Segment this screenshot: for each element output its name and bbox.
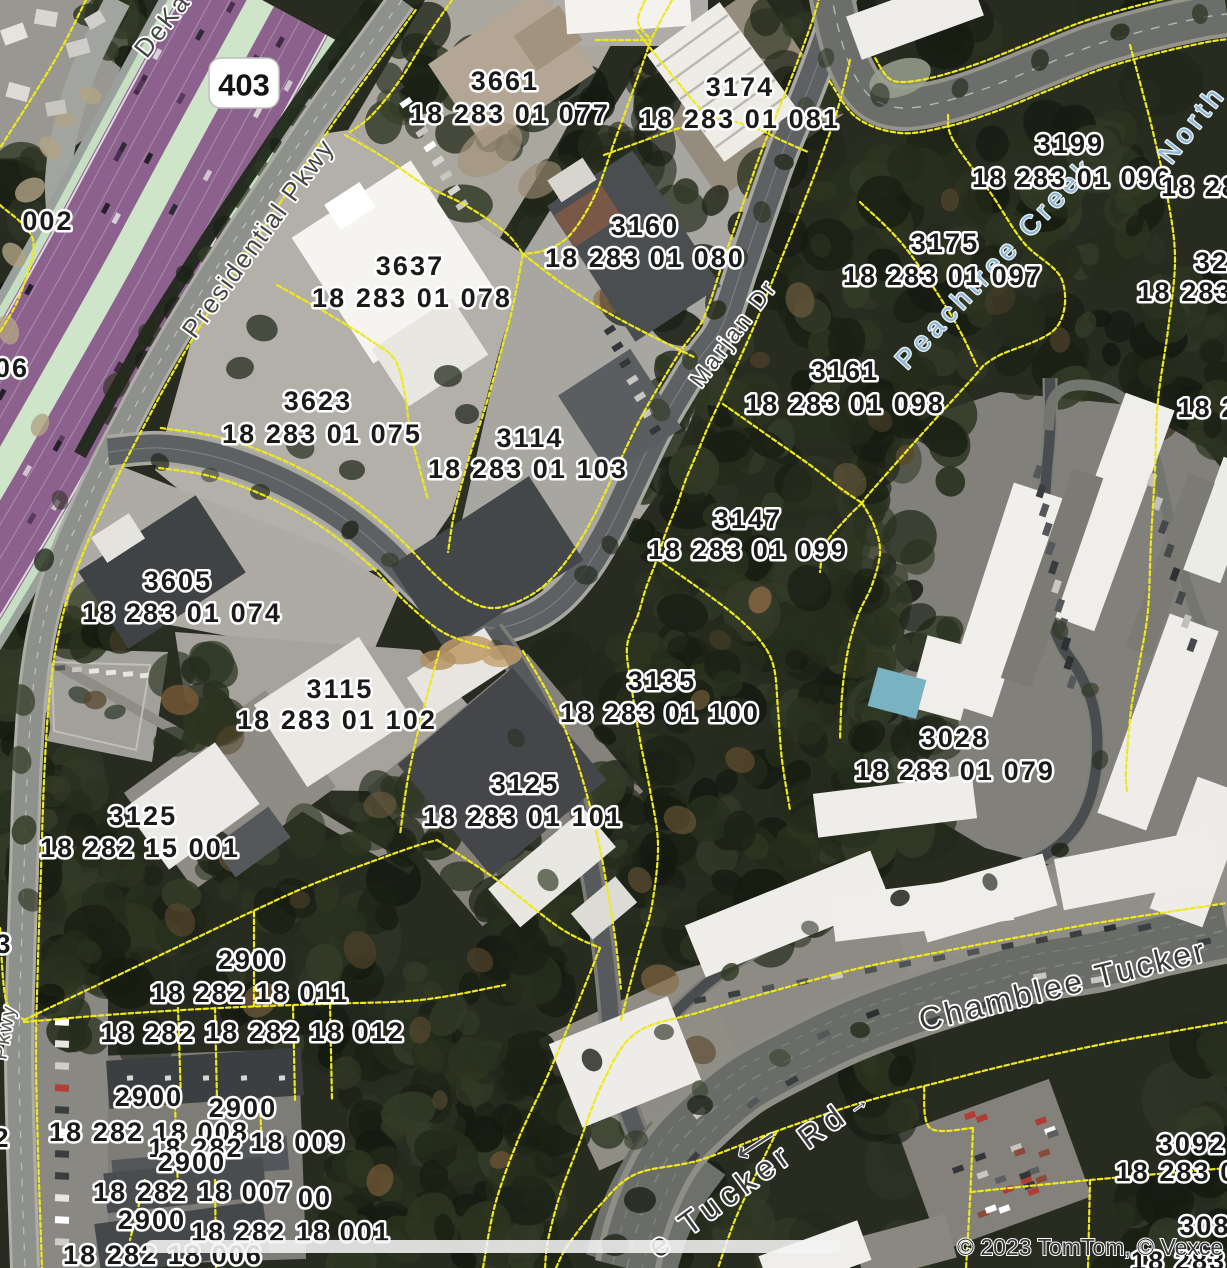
svg-text:18 283 01 101: 18 283 01 101	[423, 802, 623, 832]
svg-text:18 282 18 012: 18 282 18 012	[205, 1017, 405, 1047]
svg-text:3092: 3092	[1158, 1129, 1226, 1159]
svg-text:18 283 01 103: 18 283 01 103	[428, 454, 628, 484]
svg-text:18 283 01 098: 18 283 01 098	[745, 389, 945, 419]
svg-text:3125: 3125	[109, 801, 177, 831]
svg-text:18 283 01 075: 18 283 01 075	[222, 419, 422, 449]
svg-text:18 282 15 001: 18 282 15 001	[40, 833, 240, 863]
svg-text:403: 403	[218, 68, 270, 103]
svg-text:3605: 3605	[144, 566, 212, 596]
svg-text:3115: 3115	[307, 674, 374, 704]
svg-text:2900: 2900	[118, 1205, 186, 1235]
svg-text:© 2023 TomTom, © Vexce: © 2023 TomTom, © Vexce	[957, 1234, 1223, 1260]
svg-text:3637: 3637	[376, 251, 444, 281]
svg-text:18 283 01 074: 18 283 01 074	[82, 598, 282, 628]
svg-text:00: 00	[298, 1183, 332, 1213]
svg-text:2900: 2900	[115, 1082, 183, 1112]
svg-text:3174: 3174	[706, 72, 774, 102]
svg-text:3147: 3147	[714, 504, 782, 534]
svg-text:3028: 3028	[921, 723, 989, 753]
svg-text:3135: 3135	[628, 666, 696, 696]
svg-text:06: 06	[0, 353, 29, 383]
svg-text:18 283 01 078: 18 283 01 078	[312, 283, 512, 313]
svg-text:18 2: 18 2	[1178, 393, 1227, 423]
svg-text:3161: 3161	[811, 356, 879, 386]
svg-text:3160: 3160	[611, 211, 679, 241]
svg-text:18 282 18 011: 18 282 18 011	[151, 978, 349, 1008]
svg-text:18 283 01 081: 18 283 01 081	[640, 104, 840, 134]
svg-text:18 282 18 007: 18 282 18 007	[93, 1177, 293, 1207]
svg-text:2: 2	[0, 1123, 11, 1153]
svg-text:3661: 3661	[471, 66, 539, 96]
svg-text:002: 002	[22, 206, 73, 236]
svg-text:18 283: 18 283	[1137, 277, 1227, 307]
svg-text:3175: 3175	[911, 228, 979, 258]
svg-text:3114: 3114	[497, 423, 564, 453]
svg-text:18 283 01 080: 18 283 01 080	[545, 243, 745, 273]
svg-text:18 283 01 102: 18 283 01 102	[237, 705, 437, 735]
svg-text:18 282: 18 282	[100, 1018, 195, 1048]
svg-text:18 283 01 097: 18 283 01 097	[843, 261, 1043, 291]
svg-text:18 283 01 077: 18 283 01 077	[410, 99, 610, 129]
svg-text:3: 3	[0, 929, 13, 959]
svg-text:3125: 3125	[491, 769, 559, 799]
svg-text:18 283 01 096: 18 283 01 096	[972, 163, 1172, 193]
svg-text:3623: 3623	[284, 386, 352, 416]
svg-text:2900: 2900	[158, 1147, 226, 1177]
svg-text:3199: 3199	[1036, 129, 1104, 159]
svg-text:18 283 01 099: 18 283 01 099	[648, 535, 848, 565]
svg-text:32: 32	[1195, 247, 1227, 277]
svg-text:18 283 04: 18 283 04	[1115, 1157, 1227, 1187]
svg-text:18 283 01 100: 18 283 01 100	[560, 698, 760, 728]
svg-text:18 009: 18 009	[250, 1127, 345, 1157]
svg-text:18 283 01 079: 18 283 01 079	[855, 756, 1055, 786]
svg-text:18 28: 18 28	[1161, 172, 1227, 202]
svg-text:2900: 2900	[218, 945, 286, 975]
